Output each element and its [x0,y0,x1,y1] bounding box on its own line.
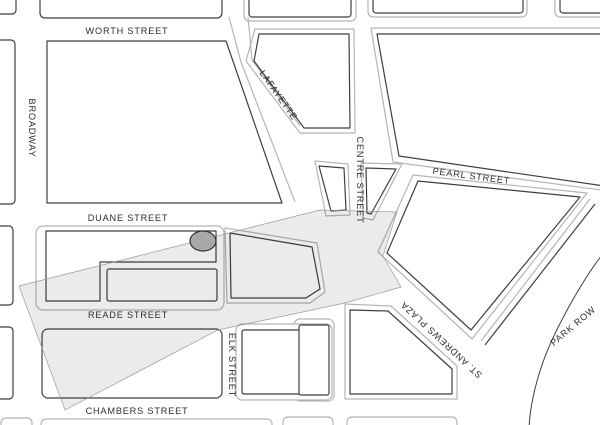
city-block [373,0,523,13]
street-map-svg: WORTH STREET BROADWAY LAFAYETTE DUANE ST… [0,0,600,425]
city-block [560,0,600,13]
curb [1,418,32,425]
city-block [249,0,351,17]
city-block [47,41,282,203]
street-label-park-row: PARK ROW [548,304,597,347]
street-label-chambers: CHAMBERS STREET [86,406,189,416]
city-block [299,325,329,395]
city-block [366,168,396,214]
site-marker-oval[interactable] [190,231,216,251]
city-block [387,181,580,330]
city-block [0,327,13,399]
city-block [0,0,16,14]
curb [283,417,333,425]
city-block [0,40,15,204]
map-canvas: WORTH STREET BROADWAY LAFAYETTE DUANE ST… [0,0,600,425]
city-block [0,226,13,305]
street-label-worth: WORTH STREET [86,26,169,36]
street-label-reade: READE STREET [88,310,168,320]
street-label-duane: DUANE STREET [88,213,169,223]
curb [347,417,457,425]
street-label-elk: ELK STREET [227,333,237,397]
city-block [40,0,222,18]
street-label-broadway: BROADWAY [27,99,37,158]
street-label-centre: CENTRE STREET [355,137,365,224]
curb [41,419,272,425]
